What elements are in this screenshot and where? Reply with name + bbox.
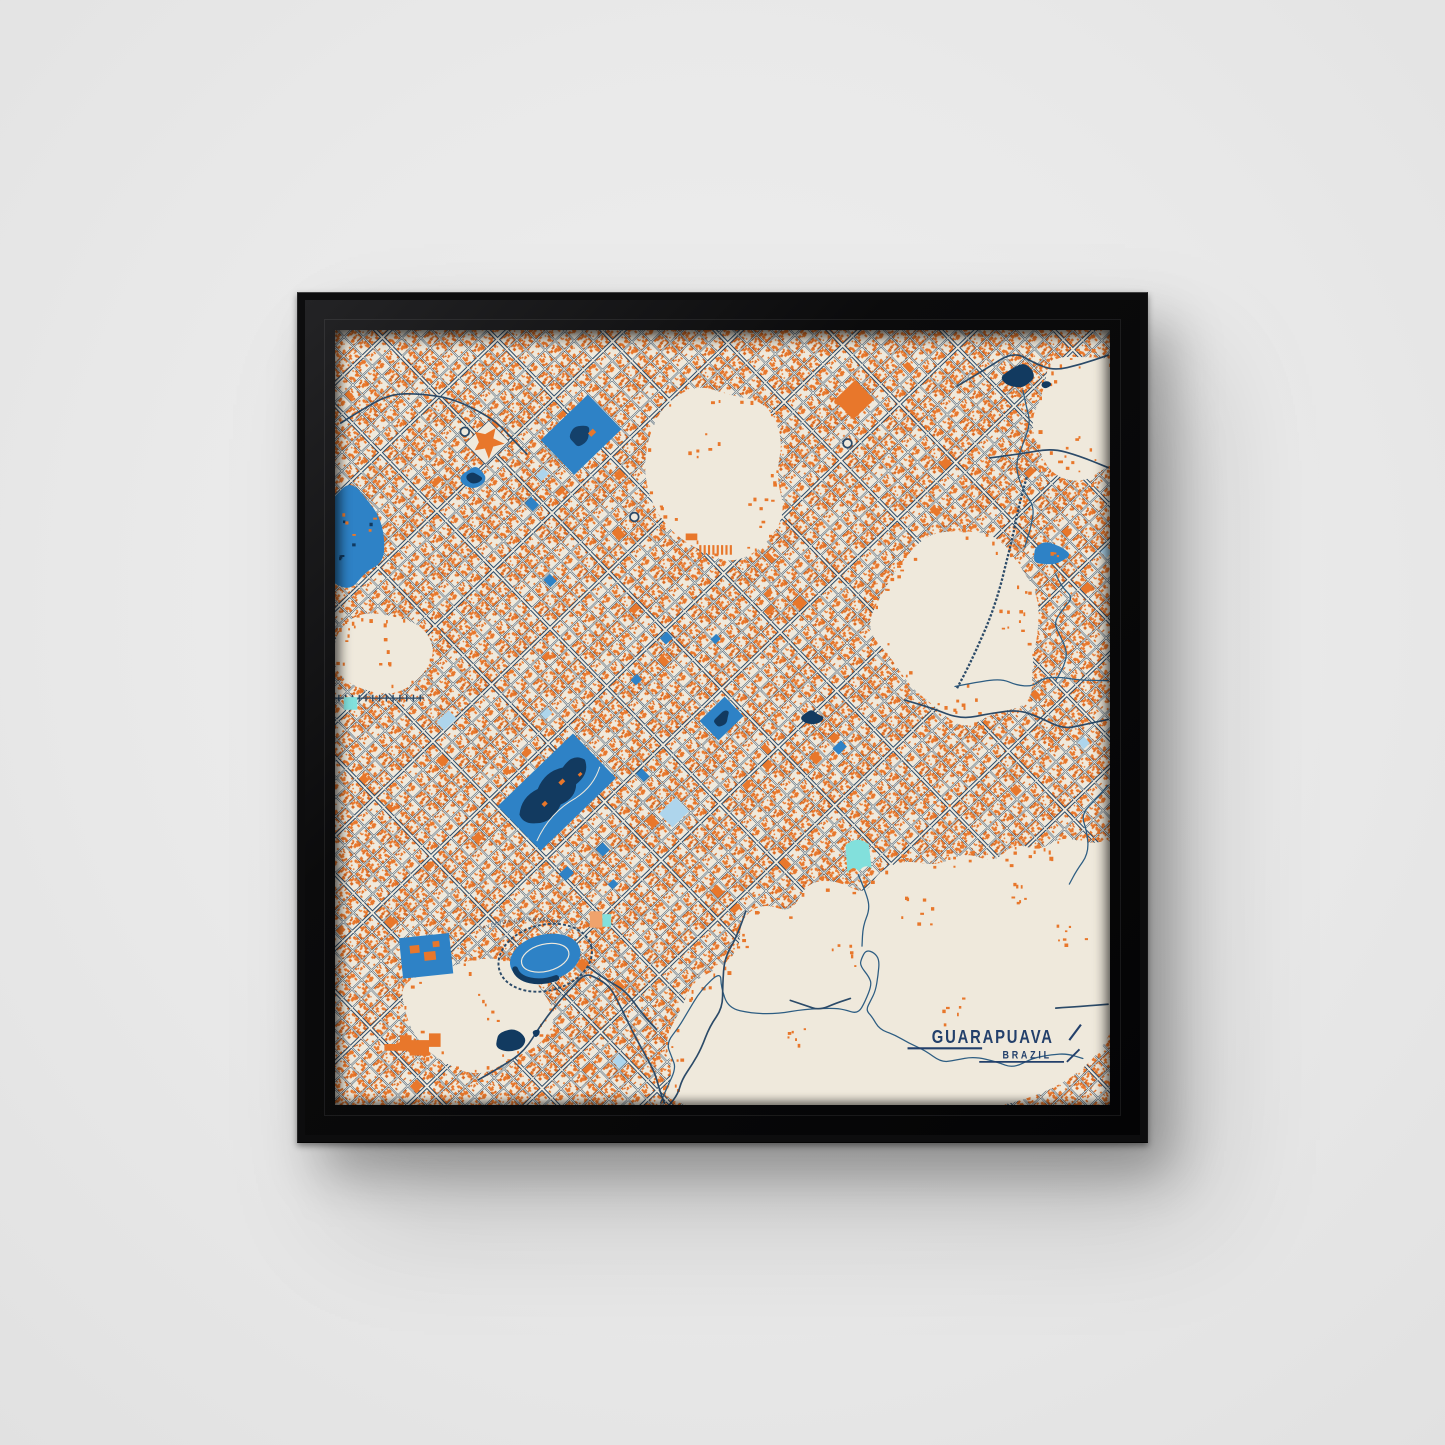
map-graphics <box>335 330 1110 1105</box>
frame-inner-lip: GUARAPUAVA BRAZIL AVENIDA GOVERNADOR <box>305 300 1140 1135</box>
city-name: GUARAPUAVA <box>932 1027 1054 1048</box>
picture-frame: GUARAPUAVA BRAZIL AVENIDA GOVERNADOR <box>297 292 1148 1143</box>
city-map: GUARAPUAVA BRAZIL AVENIDA GOVERNADOR <box>335 330 1110 1105</box>
wall: GUARAPUAVA BRAZIL AVENIDA GOVERNADOR <box>0 0 1445 1445</box>
country-name: BRAZIL <box>1002 1050 1051 1062</box>
map-print: GUARAPUAVA BRAZIL AVENIDA GOVERNADOR <box>335 330 1110 1105</box>
